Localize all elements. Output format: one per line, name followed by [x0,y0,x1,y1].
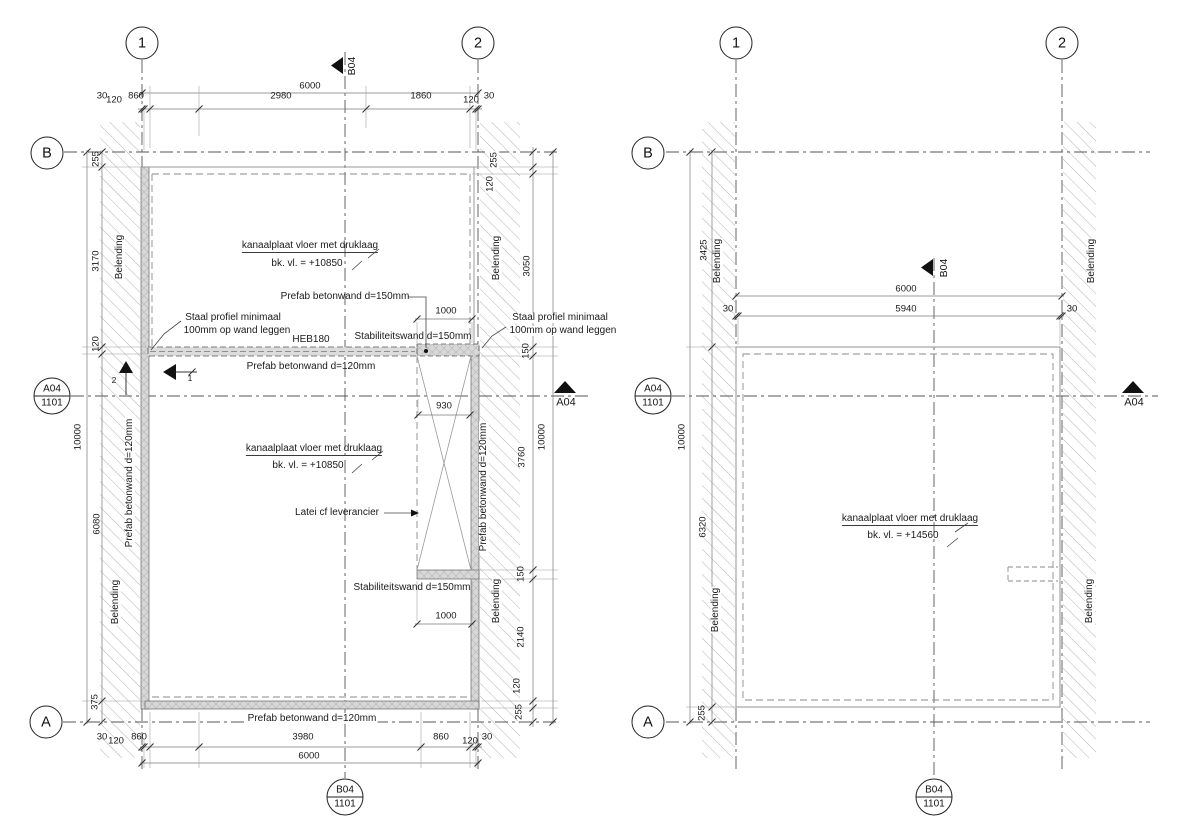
dim-lp-left-seg: 255 [91,151,101,167]
label-bkvl-upper: bk. vl. = +10850 [271,259,342,269]
sheet-number: 1101 [642,398,664,410]
section-bubble-b04-right: B041101 [916,779,953,816]
dim-lp-top-seg: 1860 [410,91,431,101]
label-prefab-betonwand-120-rightwall: Prefab betonwand d=120mm [479,422,489,553]
section-id: B04 [336,784,354,796]
dim-lp-bot-seg: 3980 [292,732,313,742]
floor-plan-sheet: 1 2 1 2 B A B A A041101 A041101 B041101 … [0,0,1177,837]
dimension-lines [87,93,1064,763]
label-belending: Belending [1085,578,1095,624]
label-stabiliteitswand-lower: Stabiliteitswand d=150mm [353,583,470,593]
label-staal-profiel-right-1: Staal profiel minimaal [511,313,609,323]
grid-bubble-B-right: B [632,137,665,170]
label-belending: Belending [711,587,721,633]
dim-lp-inner-1000-top: 1000 [435,306,456,316]
label-belending: Belending [111,579,121,625]
grid-label: 2 [1058,35,1066,51]
divider [636,396,671,397]
dim-rp-top-overall: 6000 [895,284,916,294]
dim-rp-top-edge: 30 [723,304,734,314]
b04-marker-label-left: B04 [347,57,358,76]
dim-lp-right-seg: 3050 [522,255,532,276]
dim-rp-left-seg: 255 [697,705,707,721]
label-belending: Belending [492,578,502,624]
sheet-number: 1101 [334,799,356,811]
label-heb180: HEB180 [292,335,329,345]
dim-lp-left-seg: 375 [90,694,100,710]
dim-lp-right-seg: 255 [514,704,524,720]
grid-lines [63,52,1158,778]
dim-lp-left-overall: 10000 [73,424,83,450]
label-belending: Belending [492,235,502,281]
grid-bubble-A-right: A [632,706,665,739]
section-bubble-a04-left: A041101 [34,378,71,415]
belending-hatch-strips [100,122,1096,758]
dim-lp-right-seg: 120 [485,175,495,193]
section-id: A04 [644,383,662,395]
section-bubble-b04-left: B041101 [327,779,364,816]
dim-lp-right-seg: 255 [489,151,499,169]
dim-lp-inner-1000-bottom: 1000 [435,611,456,621]
dim-lp-top-seg: 30 [484,91,495,101]
dim-lp-right-overall: 10000 [537,424,547,450]
divider [328,797,363,798]
dim-lp-right-seg: 150 [516,566,526,582]
label-belending: Belending [115,234,125,280]
label-latei: Latei cf leverancier [295,508,379,518]
dim-lp-left-seg: 120 [91,336,101,352]
dim-lp-bot-seg: 30 [482,732,493,742]
dim-lp-top-seg: 2980 [270,91,291,101]
dim-lp-top-overall: 6000 [299,81,320,91]
right-plan-slab [736,347,1060,707]
dimension-ticks [84,90,1066,767]
dim-rp-top-edge: 30 [1067,304,1078,314]
grid-label: A [643,714,653,730]
grid-label: 2 [474,35,482,51]
dim-lp-right-seg: 3760 [517,446,527,467]
dim-rp-left-seg: 3425 [699,239,709,260]
dim-lp-top-seg: 120 [463,95,479,105]
dim-lp-right-seg: 150 [521,343,531,359]
grid-bubble-A-left: A [30,706,63,739]
sheet-number: 1101 [923,799,945,811]
grid-label: 1 [138,35,146,51]
dim-rp-top-inner: 5940 [895,304,916,314]
dim-lp-bot-seg: 120 [462,736,478,746]
grid-label: 1 [732,35,740,51]
extension-lines [82,86,1060,768]
label-kanaalplaat-upper: kanaalplaat vloer met druklaag [242,241,378,253]
a04-marker-label-left: A04 [556,398,576,409]
grid-bubble-B-left: B [31,137,64,170]
drawing-linework [0,0,1177,837]
divider [35,396,70,397]
dim-rp-left-seg: 6320 [698,516,708,537]
label-kanaalplaat-lower: kanaalplaat vloer met druklaag [246,444,382,456]
dim-rp-left-overall: 10000 [677,424,687,450]
heb180-beam [148,347,428,356]
dim-lp-left-seg: 3170 [91,250,101,271]
label-staal-profiel-left-1: Staal profiel minimaal [185,313,281,323]
label-stabiliteitswand-upper: Stabiliteitswand d=150mm [354,332,471,342]
a04-marker-label-right: A04 [1124,398,1144,409]
grid-label: A [41,714,51,730]
label-prefab-betonwand-120-beam: Prefab betonwand d=120mm [247,362,376,372]
grid-bubble-2-left: 2 [462,27,495,60]
label-prefab-betonwand-120-bottom: Prefab betonwand d=120mm [247,714,378,724]
label-belending: Belending [1087,238,1097,284]
label-prefab-betonwand-120-leftwall: Prefab betonwand d=120mm [125,418,135,549]
stability-wall-xbrace [417,356,471,570]
section-id: B04 [925,784,943,796]
label-kanaalplaat-rp: kanaalplaat vloer met druklaag [842,514,978,526]
grid-label: B [42,145,52,161]
dim-lp-bot-seg: 860 [131,732,147,742]
label-belending: Belending [713,238,723,284]
dim-lp-top-seg: 120 [106,95,122,105]
grid-bubble-1-right: 1 [720,27,753,60]
dim-lp-bot-seg: 30 [97,732,108,742]
divider [917,797,952,798]
detail-marker-1: 1 [188,374,193,383]
section-id: A04 [43,383,61,395]
b04-marker-label-right: B04 [939,259,950,278]
dim-lp-inner-930: 930 [436,401,452,411]
dim-lp-left-seg: 6080 [92,513,102,534]
section-bubble-a04-right: A041101 [635,378,672,415]
detail-marker-2: 2 [112,376,117,385]
label-prefab-betonwand-150: Prefab betonwand d=150mm [281,292,410,302]
label-bkvl-lower: bk. vl. = +10850 [272,461,343,471]
sheet-number: 1101 [41,398,63,410]
grid-label: B [643,145,653,161]
label-staal-profiel-right-2: 100mm op wand leggen [509,326,618,336]
dim-lp-right-seg: 120 [512,678,522,694]
dim-lp-bot-seg: 860 [433,732,449,742]
grid-bubble-2-right: 2 [1046,27,1079,60]
label-bkvl-rp: bk. vl. = +14560 [867,531,938,541]
dim-lp-bot-seg: 120 [108,736,124,746]
dim-lp-right-seg: 2140 [516,626,526,647]
dim-lp-top-seg: 860 [128,91,144,101]
grid-bubble-1-left: 1 [126,27,159,60]
dim-lp-bot-overall: 6000 [298,751,319,761]
label-staal-profiel-left-2: 100mm op wand leggen [184,326,291,336]
